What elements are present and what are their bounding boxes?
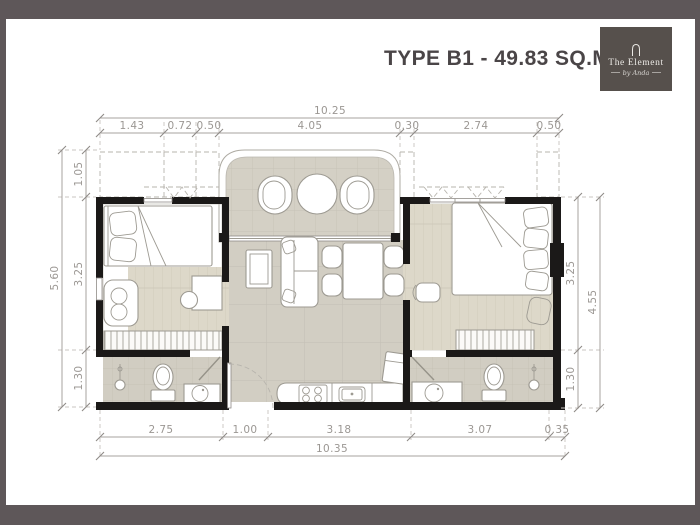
bed-icon: [104, 206, 212, 266]
dim-label: 1.30: [73, 366, 85, 391]
dim-label: 3.25: [73, 262, 85, 287]
dim-label: 1.30: [565, 367, 577, 392]
dim-label: 0.35: [545, 424, 570, 436]
sofa-icon: [281, 237, 318, 307]
sink-icon: [184, 384, 220, 404]
sink-icon: [412, 382, 462, 404]
stool-icon: [181, 292, 198, 309]
bed-icon: [452, 203, 552, 295]
ledge-gap: [400, 152, 414, 197]
armchair-icon: [104, 280, 138, 326]
window-symbol: [419, 187, 505, 198]
dim-label: 3.25: [565, 261, 577, 286]
plan-sheet: TYPE B1 - 49.83 SQ.M. The Element by And…: [6, 19, 695, 505]
toilet-icon: [482, 364, 506, 401]
dim-label: 1.00: [233, 424, 258, 436]
toilet-icon: [151, 364, 175, 401]
ledge-right: [537, 152, 559, 197]
wardrobe-icon: [456, 330, 534, 350]
stool-icon: [413, 283, 440, 302]
dim-label: 4.05: [298, 120, 323, 132]
dim-label: 2.74: [464, 120, 489, 132]
dim-label: 0.50: [537, 120, 562, 132]
dim-label: 2.75: [149, 424, 174, 436]
dim-label: 10.35: [316, 443, 348, 455]
dim-label: 0.30: [395, 120, 420, 132]
slide-background: { "title": "TYPE B1 - 49.83 SQ.M.", "log…: [0, 0, 700, 525]
dim-label: 3.07: [468, 424, 493, 436]
ledge-left: [100, 152, 219, 197]
floor-plan-svg: 10.25 1.43 0.72 0.50 4.05 0.30 2.74 0.50…: [6, 19, 695, 505]
dim-label: 1.05: [73, 162, 85, 187]
dim-label: 4.55: [587, 290, 599, 315]
coffee-table-icon: [246, 250, 272, 288]
balcony-chair-icon: [258, 176, 292, 214]
dim-label: 10.25: [314, 105, 346, 117]
dim-label: 1.43: [120, 120, 145, 132]
dim-label: 0.50: [197, 120, 222, 132]
dim-label: 5.60: [49, 266, 61, 291]
dim-label: 3.18: [327, 424, 352, 436]
balcony-table-icon: [297, 174, 337, 214]
window-symbol: [144, 187, 219, 198]
balcony-chair-icon: [340, 176, 374, 214]
dim-label: 0.72: [168, 120, 193, 132]
wardrobe-icon: [104, 331, 222, 350]
